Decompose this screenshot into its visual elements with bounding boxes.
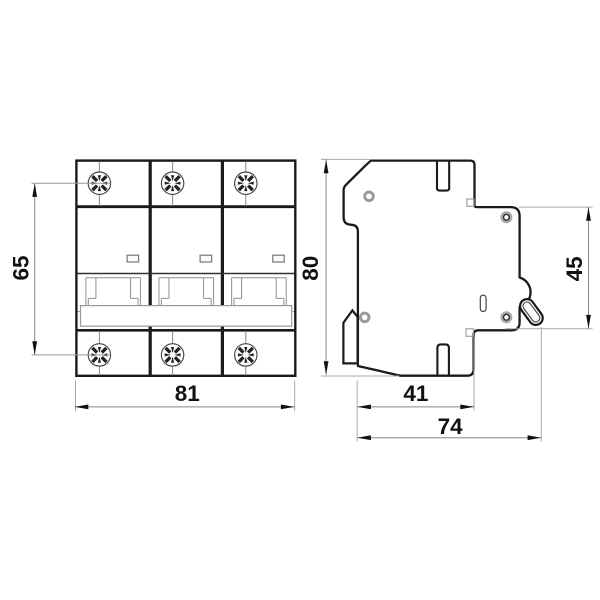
svg-text:41: 41	[403, 381, 428, 406]
svg-text:74: 74	[438, 414, 464, 439]
svg-text:80: 80	[298, 256, 323, 281]
svg-text:45: 45	[562, 256, 587, 281]
svg-text:81: 81	[175, 381, 200, 406]
svg-text:65: 65	[8, 255, 33, 280]
